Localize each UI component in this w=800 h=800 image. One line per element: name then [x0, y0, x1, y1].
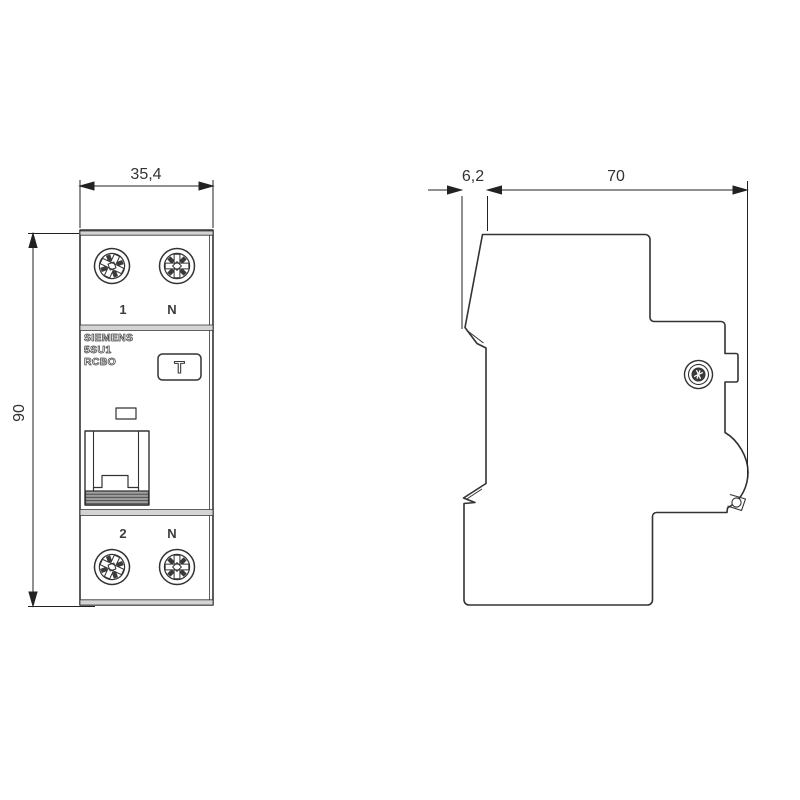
- toggle-lever: [85, 431, 149, 505]
- front-view: 1 N 2 N SIEMENS 5SU1 RCBO T: [80, 230, 213, 605]
- terminal-label-n-bottom: N: [167, 526, 176, 541]
- terminal-label-n-top: N: [167, 302, 176, 317]
- test-button: T: [158, 354, 201, 380]
- dim-front-width-label: 35,4: [130, 166, 161, 183]
- indicator-window: [116, 408, 136, 419]
- dim-side-depth-label: 70: [607, 168, 625, 185]
- terminal-screw-bottom-right-icon: [160, 550, 195, 585]
- terminal-label-1: 1: [119, 302, 126, 317]
- terminal-label-2: 2: [119, 526, 126, 541]
- brand-line-rcbo: RCBO: [84, 356, 116, 368]
- dimension-drawing-page: 1 N 2 N SIEMENS 5SU1 RCBO T: [0, 0, 800, 800]
- brand-line-5su1: 5SU1: [84, 344, 111, 356]
- terminal-screw-top-right-icon: [160, 249, 195, 284]
- dim-side-front-depth-label: 6,2: [462, 168, 484, 185]
- dimension-drawing: 1 N 2 N SIEMENS 5SU1 RCBO T: [0, 0, 800, 800]
- brand-line-siemens: SIEMENS: [84, 332, 133, 344]
- test-button-label: T: [174, 358, 185, 377]
- front-body-outline: [80, 230, 213, 605]
- dim-front-height-label: 90: [11, 404, 28, 422]
- lever-grip: [86, 491, 149, 505]
